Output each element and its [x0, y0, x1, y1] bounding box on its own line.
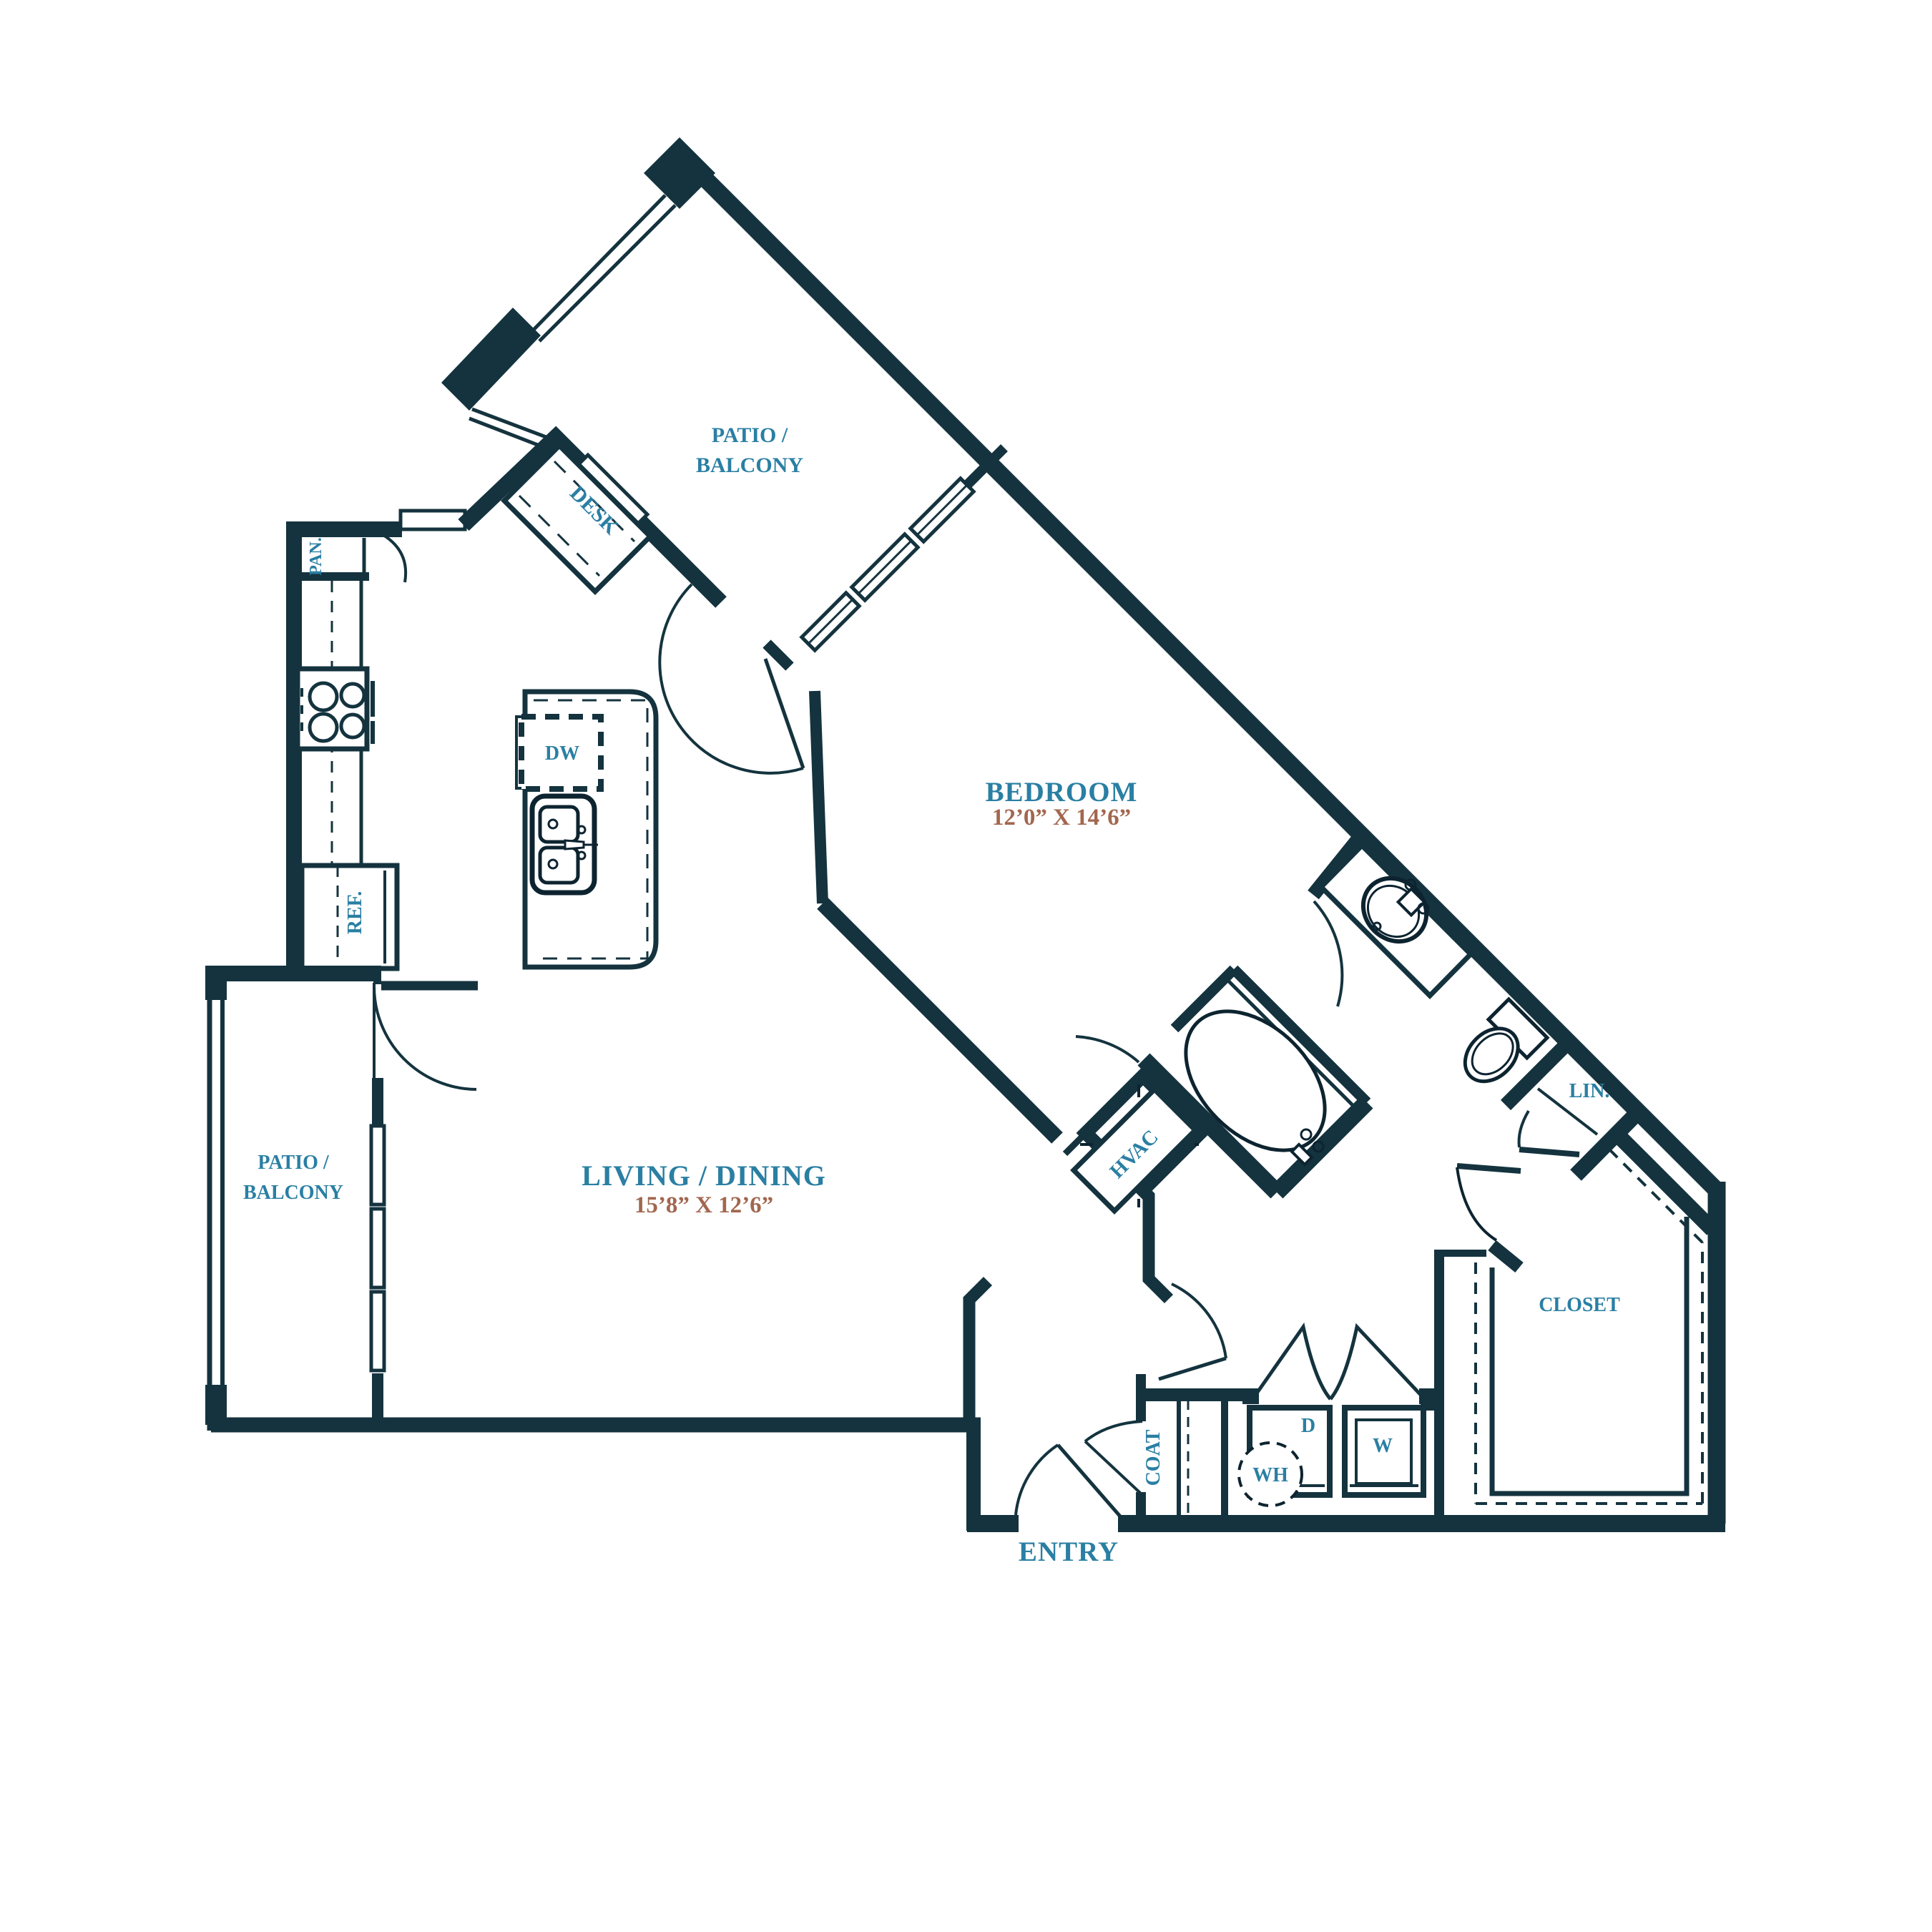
svg-text:PAN.: PAN.	[307, 537, 325, 576]
svg-text:BALCONY: BALCONY	[243, 1182, 343, 1204]
svg-text:PATIO /: PATIO /	[258, 1152, 330, 1174]
svg-text:LIN.: LIN.	[1569, 1080, 1610, 1102]
svg-text:BEDROOM: BEDROOM	[986, 777, 1138, 808]
svg-text:LIVING / DINING: LIVING / DINING	[582, 1159, 826, 1192]
svg-text:WH: WH	[1252, 1464, 1288, 1486]
svg-text:W: W	[1373, 1435, 1393, 1457]
svg-text:DW: DW	[545, 742, 579, 765]
svg-text:PATIO /: PATIO /	[712, 423, 788, 447]
svg-text:ENTRY: ENTRY	[1019, 1536, 1119, 1567]
svg-text:REF.: REF.	[344, 891, 366, 934]
svg-text:CLOSET: CLOSET	[1539, 1294, 1620, 1316]
svg-text:BALCONY: BALCONY	[696, 453, 803, 477]
svg-text:12’0” X 14’6”: 12’0” X 14’6”	[992, 805, 1131, 830]
svg-text:15’8” X 12’6”: 15’8” X 12’6”	[634, 1192, 773, 1218]
svg-text:D: D	[1301, 1415, 1315, 1437]
svg-text:COAT: COAT	[1142, 1429, 1164, 1486]
